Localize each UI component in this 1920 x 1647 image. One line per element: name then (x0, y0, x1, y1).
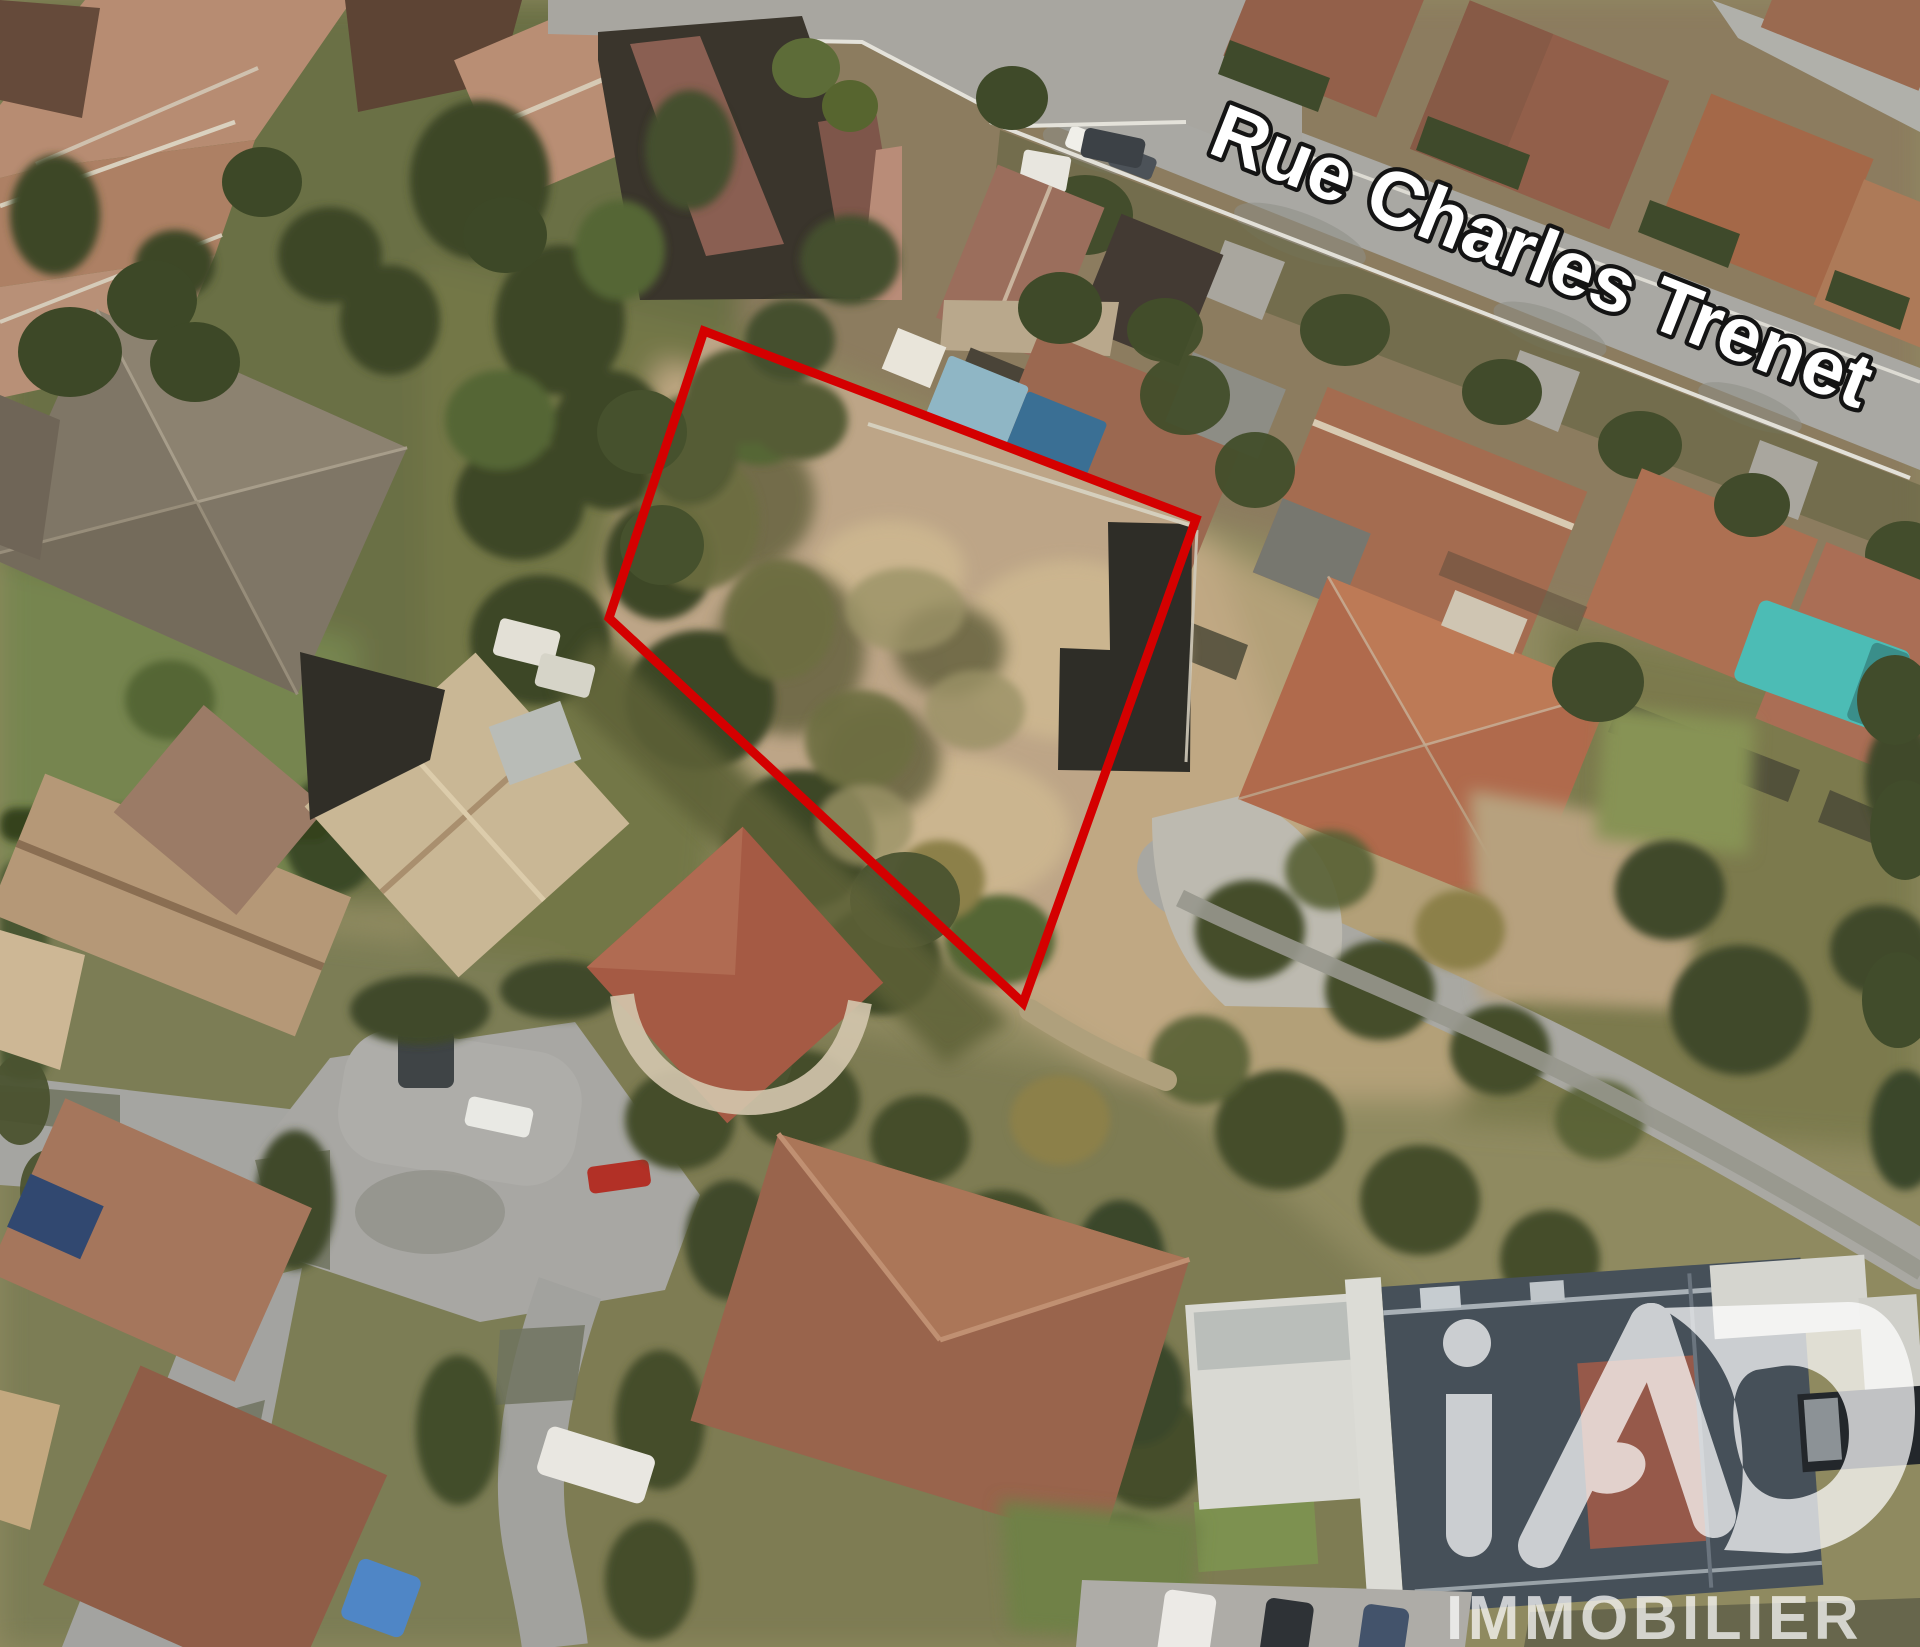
svg-text:IMMOBILIER: IMMOBILIER (1446, 1584, 1863, 1647)
